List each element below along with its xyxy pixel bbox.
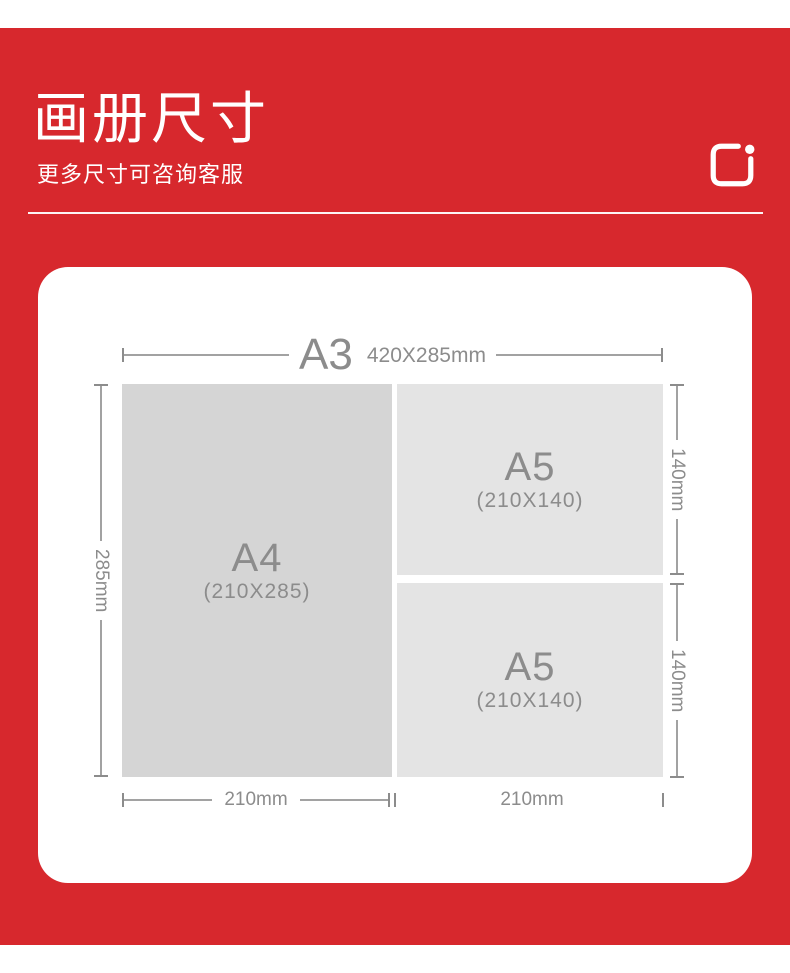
dimension-bottom-width-right: 210mm <box>400 786 664 814</box>
header-divider <box>28 212 763 214</box>
page-title: 画册尺寸 <box>33 84 269 154</box>
dimension-a3-width: A3 420X285mm <box>122 331 663 379</box>
bottom-width-label-right: 210mm <box>500 789 563 811</box>
a4-size-label: A4 <box>203 537 310 579</box>
dimension-bottom-width-left: 210mm <box>122 786 396 814</box>
tick-mark <box>670 776 684 778</box>
a5-top-size-label: A5 <box>476 446 583 488</box>
dimension-line <box>124 354 289 356</box>
bottom-width-label-left: 210mm <box>224 789 287 811</box>
tick-mark <box>662 793 664 807</box>
sheet-a5-bottom: A5 (210X140) <box>397 583 663 777</box>
dimension-line <box>124 799 212 801</box>
tick-mark <box>670 573 684 575</box>
tick-mark <box>388 793 390 807</box>
a5-bottom-size-label: A5 <box>476 646 583 688</box>
sheet-a4: A4 (210X285) <box>122 384 392 777</box>
a3-size-label: A3 <box>299 333 353 377</box>
right-height-label-top: 140mm <box>666 448 688 511</box>
product-size-infographic: 画册尺寸 更多尺寸可咨询客服 A3 420X285mm A4 (210X285)… <box>0 0 790 973</box>
tick-mark <box>394 793 396 807</box>
dimension-line <box>100 386 102 541</box>
dimension-line <box>676 386 678 440</box>
page-subtitle: 更多尺寸可咨询客服 <box>37 161 244 190</box>
a4-dims-label: (210X285) <box>203 579 310 604</box>
sheet-a5-top: A5 (210X140) <box>397 384 663 575</box>
dimension-line <box>676 585 678 641</box>
sheet-a5-bottom-labels: A5 (210X140) <box>476 646 583 713</box>
a3-dims-label: 420X285mm <box>367 345 486 366</box>
right-height-label-bottom: 140mm <box>666 649 688 712</box>
dimension-right-height-top: 140mm <box>670 384 684 575</box>
brand-logo-icon <box>708 141 756 189</box>
dimension-line <box>300 799 388 801</box>
dimension-line <box>496 354 661 356</box>
dimension-line <box>100 620 102 775</box>
double-tick-mark <box>388 793 396 807</box>
sheet-a4-labels: A4 (210X285) <box>203 537 310 604</box>
dimension-line <box>676 519 678 573</box>
dimension-left-height: 285mm <box>94 384 108 777</box>
dimension-right-height-bottom: 140mm <box>670 583 684 778</box>
tick-mark <box>661 348 663 362</box>
tick-mark <box>94 775 108 777</box>
sheet-a5-top-labels: A5 (210X140) <box>476 446 583 513</box>
dimension-line <box>676 720 678 776</box>
left-height-label: 285mm <box>90 549 112 612</box>
a5-bottom-dims-label: (210X140) <box>476 688 583 713</box>
a5-top-dims-label: (210X140) <box>476 488 583 513</box>
size-diagram-card: A3 420X285mm A4 (210X285) A5 (210X140) A… <box>38 267 752 883</box>
